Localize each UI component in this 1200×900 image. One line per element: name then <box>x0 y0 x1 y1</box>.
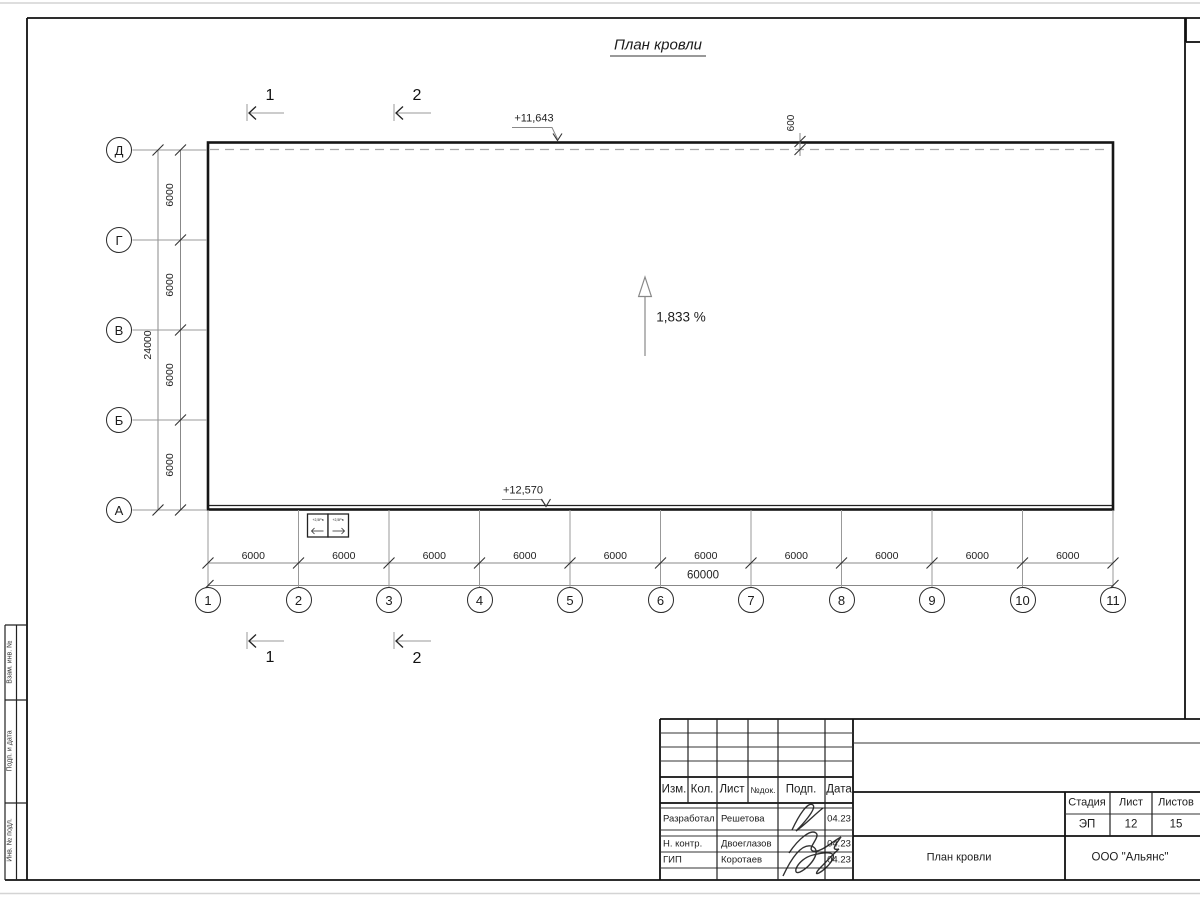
stage-value: ЭП <box>1079 819 1096 831</box>
row-segment-dim-label: 6000 <box>165 273 176 296</box>
rev-header-ndok: №док. <box>751 786 776 795</box>
col-segment-dim-label: 6000 <box>513 551 536 562</box>
row-segment-dim-label: 6000 <box>165 363 176 386</box>
frame-label-podp-data: Подп. и дата <box>7 730 14 771</box>
section-mark-1-top-label: 1 <box>266 88 275 104</box>
name-norm-control: Двоеглазов <box>721 839 772 849</box>
row-axis-bubble-Г: Г <box>106 227 132 253</box>
drawing-sheet: 1600026000360004600056000660007600086000… <box>0 0 1200 900</box>
title-block-drawing-name: План кровли <box>927 853 992 864</box>
col-segment-dim-label: 6000 <box>966 551 989 562</box>
row-axis-bubble-В: В <box>106 317 132 343</box>
sheets-value: 15 <box>1170 819 1183 831</box>
col-axis-bubble-4: 4 <box>467 587 493 613</box>
date-norm-control: 04.23 <box>827 839 851 849</box>
name-developer: Решетова <box>721 814 765 824</box>
sheet-header: Лист <box>1119 798 1143 809</box>
row-total-dim-label: 24000 <box>143 330 154 359</box>
col-axis-bubble-6: 6 <box>648 587 674 613</box>
col-axis-bubble-5: 5 <box>557 587 583 613</box>
rev-header-izm: Изм. <box>662 784 687 796</box>
detail-box-label-2: +2,5Рв <box>333 518 344 522</box>
rev-header-data: Дата <box>826 784 851 796</box>
frame-label-zam-inv: Взам. инв. № <box>7 640 14 683</box>
name-chief-engineer: Коротаев <box>721 855 762 865</box>
col-axis-bubble-7: 7 <box>738 587 764 613</box>
roof-outline <box>208 143 1113 510</box>
col-axis-bubble-10: 10 <box>1010 587 1036 613</box>
section-mark-1-bottom-label: 1 <box>266 650 275 666</box>
sheet-value: 12 <box>1125 819 1138 831</box>
row-segment-dim-label: 6000 <box>165 183 176 206</box>
elevation-mark-top: +11,643 <box>514 114 553 125</box>
frame-label-inv-podl: Инв. № подл. <box>7 818 14 862</box>
role-chief-engineer: ГИП <box>663 855 682 865</box>
section-mark-2-top-label: 2 <box>413 88 422 104</box>
row-axis-bubble-Б: Б <box>106 407 132 433</box>
drawing-title-heading: План кровли <box>610 38 706 57</box>
rev-header-list: Лист <box>720 784 745 796</box>
elevation-mark-bottom: +12,570 <box>503 486 543 497</box>
rev-header-podp: Подп. <box>786 784 817 796</box>
col-segment-dim-label: 6000 <box>875 551 898 562</box>
parapet-offset-dim-label: 600 <box>787 115 797 132</box>
role-developer: Разработал <box>663 814 715 824</box>
detail-box-label-1: +2,5Рв <box>312 518 323 522</box>
col-segment-dim-label: 6000 <box>604 551 627 562</box>
rev-header-kol: Кол. <box>691 784 714 796</box>
col-axis-bubble-8: 8 <box>829 587 855 613</box>
section-mark-2-bottom-label: 2 <box>413 651 422 667</box>
col-segment-dim-label: 6000 <box>242 551 265 562</box>
col-segment-dim-label: 6000 <box>423 551 446 562</box>
stage-header: Стадия <box>1068 798 1106 809</box>
date-developer: 04.23 <box>827 814 851 824</box>
date-chief-engineer: 04.23 <box>827 855 851 865</box>
drawing-line-art <box>0 0 1200 900</box>
title-block-company: ООО "Альянс" <box>1092 852 1169 864</box>
col-axis-bubble-2: 2 <box>286 587 312 613</box>
row-axis-bubble-Д: Д <box>106 137 132 163</box>
col-axis-bubble-1: 1 <box>195 587 221 613</box>
col-segment-dim-label: 6000 <box>694 551 717 562</box>
row-segment-dim-label: 6000 <box>165 453 176 476</box>
role-norm-control: Н. контр. <box>663 839 702 849</box>
col-segment-dim-label: 6000 <box>785 551 808 562</box>
col-segment-dim-label: 6000 <box>1056 551 1079 562</box>
col-axis-bubble-3: 3 <box>376 587 402 613</box>
col-total-dim-label: 60000 <box>687 570 719 582</box>
slope-label: 1,833 % <box>656 310 706 324</box>
col-segment-dim-label: 6000 <box>332 551 355 562</box>
sheets-header: Листов <box>1158 798 1194 809</box>
row-axis-bubble-А: А <box>106 497 132 523</box>
col-axis-bubble-9: 9 <box>919 587 945 613</box>
col-axis-bubble-11: 11 <box>1100 587 1126 613</box>
